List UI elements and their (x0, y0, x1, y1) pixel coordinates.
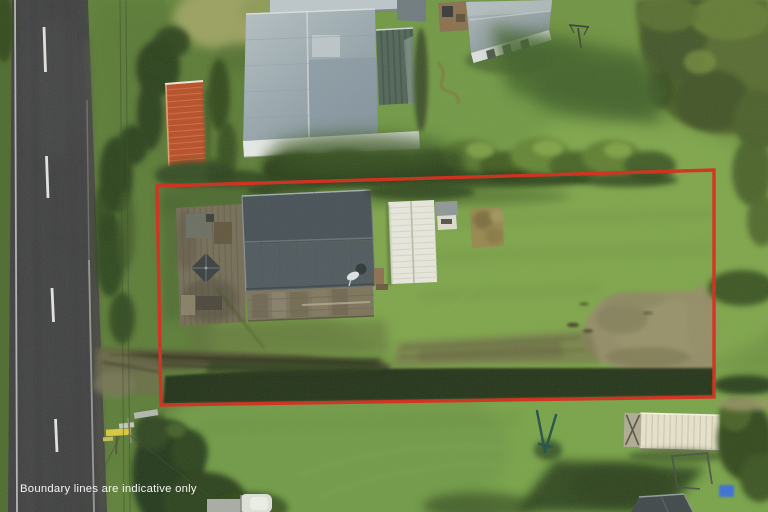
svg-text:Boundary lines are indicative: Boundary lines are indicative only (20, 483, 197, 495)
